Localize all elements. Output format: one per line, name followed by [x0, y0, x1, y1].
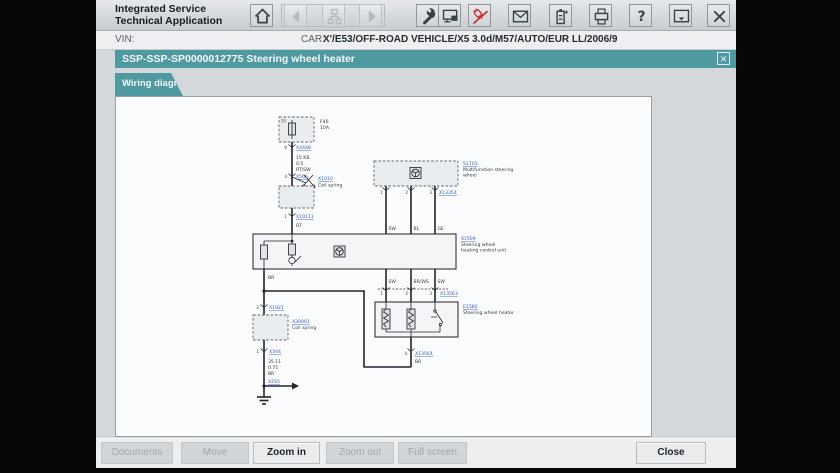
- wire-a-color: RT/SW: [296, 167, 311, 173]
- back-arrow-icon: [286, 6, 307, 27]
- conn-c-code[interactable]: X10111: [296, 214, 314, 220]
- car-value: X'/E53/OFF-ROAD VEHICLE/X5 3.0d/M57/AUTO…: [323, 34, 618, 45]
- document-close-button[interactable]: ✕: [717, 52, 730, 65]
- heater-code[interactable]: E1580: [463, 304, 478, 310]
- coil-spring-box: [253, 315, 288, 340]
- conn-e-pin: 2: [256, 305, 259, 310]
- vehicle-info-bar: VIN: CAR: X'/E53/OFF-ROAD VEHICLE/X5 3.0…: [96, 31, 736, 50]
- cut-label: Coil spring: [318, 183, 342, 189]
- mid-pin-1: 1: [380, 291, 383, 296]
- app-title-line1: Integrated Service: [115, 3, 222, 15]
- vehicle-connection-button[interactable]: [468, 4, 491, 27]
- conn-a-pin: 9: [284, 145, 287, 150]
- mfl-wire-1: SW: [389, 226, 397, 232]
- mfl-pin-2: 2: [405, 190, 408, 195]
- fuse-name: F46: [320, 119, 329, 125]
- back-button[interactable]: [284, 4, 307, 27]
- fuse-pin: 30: [281, 119, 287, 124]
- minimize-panel-icon: [671, 6, 692, 27]
- conn-d-wire: BR: [415, 359, 422, 365]
- wire-c-color: BR: [268, 275, 275, 281]
- ground-symbol: [257, 397, 271, 404]
- print-button[interactable]: [589, 4, 612, 27]
- operations-button[interactable]: [416, 4, 439, 27]
- app-title-line2: Technical Application: [115, 15, 222, 27]
- sitemap-button[interactable]: [322, 4, 345, 27]
- wrench-icon: [418, 6, 439, 27]
- full-screen-button[interactable]: Full screen: [398, 442, 467, 464]
- header-bar: Integrated Service Technical Application: [96, 0, 736, 31]
- coil-label: Coil spring: [292, 325, 316, 331]
- ctrl-line1: Steering wheel: [461, 242, 495, 248]
- battery-icon: [551, 6, 572, 27]
- wiring-diagram: 30 F46 10A 9 X4448 15 KB 0.5 RT/SW 4 X56…: [116, 103, 651, 435]
- cut-code[interactable]: X1010: [318, 176, 333, 182]
- mid-pin-3: 3: [429, 291, 432, 296]
- home-button[interactable]: [250, 4, 273, 27]
- mfl-wire-2: BL: [414, 226, 420, 232]
- wire-d-circuit: 35.11: [268, 359, 281, 365]
- footer-bar: Documents Move Zoom in Zoom out Full scr…: [96, 438, 736, 468]
- tab-wiring-diagram[interactable]: Wiring diagram: [115, 73, 183, 96]
- document-title-bar: SSP-SSP-SP0000012775 Steering wheel heat…: [115, 50, 736, 68]
- mid-pin-2: 2: [405, 291, 408, 296]
- coil-code[interactable]: X30001: [292, 319, 310, 325]
- wire-continuation-arrow: [292, 383, 299, 390]
- coil-spring-upper-box: [279, 186, 314, 208]
- conn-b-pin: 4: [284, 174, 287, 179]
- mfl-conn-code[interactable]: X13354: [439, 190, 457, 196]
- svg-text:?: ?: [637, 9, 645, 25]
- conn-f-pin: 1: [256, 349, 259, 354]
- forward-arrow-icon: [361, 6, 382, 27]
- mid-conn-code[interactable]: X13563: [440, 291, 458, 297]
- forward-button[interactable]: [359, 4, 382, 27]
- vin-label: VIN:: [115, 34, 134, 45]
- steering-wheel-icon: [334, 246, 345, 257]
- ista-window: Integrated Service Technical Application: [96, 0, 736, 467]
- wire-d-color: BR: [268, 371, 275, 377]
- mfl-code[interactable]: S1703: [463, 161, 478, 167]
- battery-button[interactable]: [549, 4, 572, 27]
- ground-code[interactable]: X255: [268, 379, 280, 385]
- car-label: CAR:: [301, 34, 325, 45]
- wire-a-size: 0.5: [296, 161, 303, 167]
- mail-icon: [510, 6, 531, 27]
- mfl-pin-1: 1: [380, 190, 383, 195]
- zoom-out-button[interactable]: Zoom out: [326, 442, 394, 464]
- workshop-button[interactable]: [438, 4, 461, 27]
- mfl-wire-3: GE: [438, 226, 445, 232]
- conn-f-code[interactable]: X344: [269, 349, 281, 355]
- printer-icon: [591, 6, 612, 27]
- heater-label: Steering wheel heater: [463, 310, 514, 316]
- ctrl-code[interactable]: S1509: [461, 236, 476, 242]
- messages-button[interactable]: [508, 4, 531, 27]
- wire-a-circuit: 15 KB: [296, 155, 309, 161]
- close-icon: [709, 6, 730, 27]
- close-app-button[interactable]: [707, 4, 730, 27]
- conn-d-pin: 4: [404, 351, 407, 356]
- conn-c-pin: 1: [284, 214, 287, 219]
- conn-a-code[interactable]: X4448: [296, 145, 311, 151]
- help-icon: ?: [631, 6, 652, 27]
- sitemap-icon: [324, 6, 345, 27]
- ctrl-line2: heating control unit: [461, 248, 506, 254]
- mid-wire-2: BR/WS: [414, 279, 429, 285]
- zoom-in-button[interactable]: Zoom in: [253, 442, 320, 464]
- wiring-diagram-panel[interactable]: 30 F46 10A 9 X4448 15 KB 0.5 RT/SW 4 X56…: [115, 96, 652, 437]
- mfl-pin-3: 3: [429, 190, 432, 195]
- document-title: SSP-SSP-SP0000012775 Steering wheel heat…: [122, 53, 355, 65]
- mid-wire-3: SW: [438, 279, 446, 285]
- tab-label: Wiring diagram: [122, 78, 191, 89]
- mid-wire-1: SW: [389, 279, 397, 285]
- app-title: Integrated Service Technical Application: [115, 3, 222, 27]
- fuse-rating: 10A: [320, 125, 330, 131]
- wire-d-size: 0.75: [268, 365, 278, 371]
- vehicle-connection-icon: [470, 6, 491, 27]
- minimize-panel-button[interactable]: [669, 4, 692, 27]
- close-button[interactable]: Close: [636, 442, 706, 464]
- move-button[interactable]: Move: [181, 442, 249, 464]
- conn-d-code[interactable]: X13564: [415, 351, 433, 357]
- help-button[interactable]: ?: [629, 4, 652, 27]
- documents-button[interactable]: Documents: [101, 442, 173, 464]
- workshop-info-icon: [440, 6, 461, 27]
- home-icon: [252, 6, 273, 27]
- control-unit-box: [253, 234, 456, 269]
- mfl-line1: Multifunction steering: [463, 167, 513, 173]
- mfl-line2: wheel: [463, 173, 477, 179]
- wire-b-color: RT: [296, 223, 302, 229]
- conn-e-code[interactable]: X1921: [269, 305, 284, 311]
- steering-wheel-icon: [410, 168, 421, 179]
